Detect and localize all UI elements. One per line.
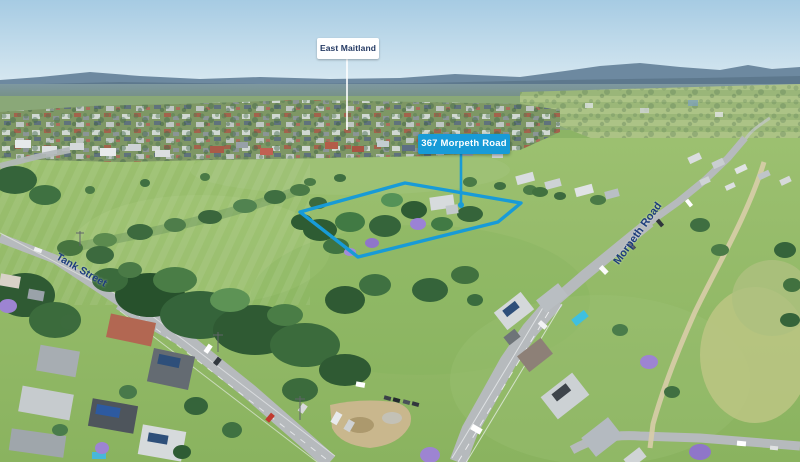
jacaranda-tree — [410, 218, 426, 230]
aerial-scene — [0, 0, 800, 462]
east-maitland-label: East Maitland — [317, 38, 379, 59]
property-pointer-dot — [458, 202, 464, 208]
jacaranda-tree — [689, 444, 711, 460]
aerial-photo: East Maitland 367 Morpeth Road Tank Stre… — [0, 0, 800, 462]
property-address-label: 367 Morpeth Road — [418, 134, 510, 154]
jacaranda-tree — [640, 355, 658, 369]
jacaranda-tree — [365, 238, 379, 248]
jacaranda-tree — [95, 442, 109, 454]
sky — [0, 0, 800, 92]
